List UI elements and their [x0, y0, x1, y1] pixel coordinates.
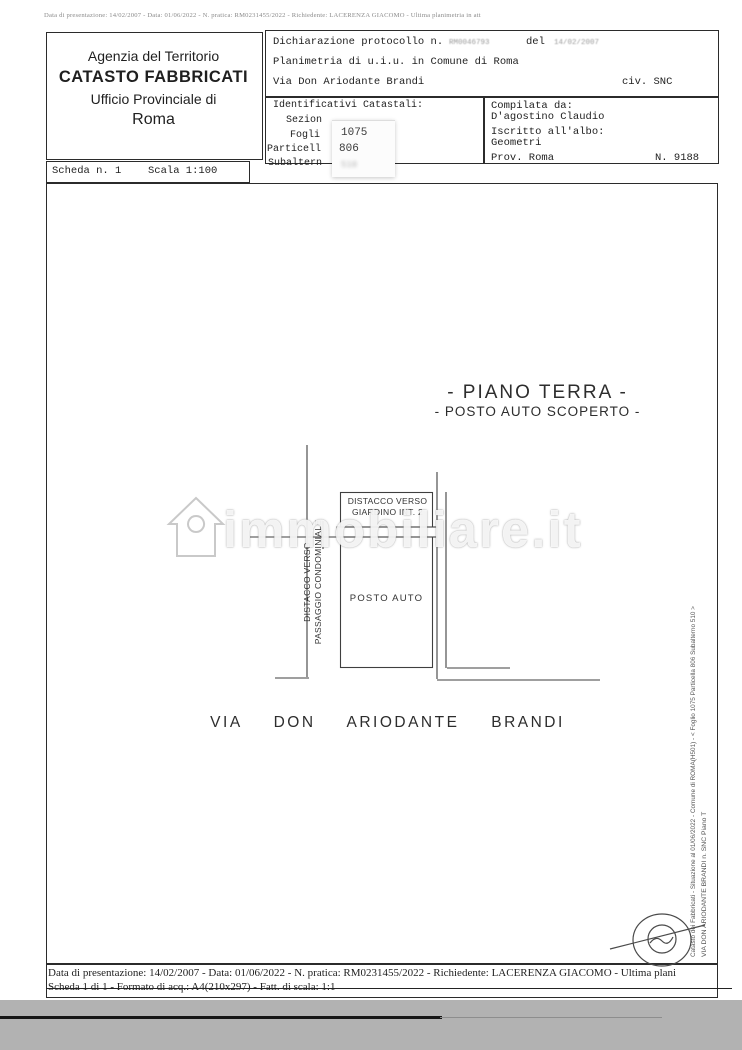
- posto-auto-label: POSTO AUTO: [340, 593, 433, 604]
- footer-line1: Data di presentazione: 14/02/2007 - Data…: [48, 967, 676, 979]
- footer-line2: Scheda 1 di 1 - Formato di acq.: A4(210x…: [48, 981, 335, 993]
- watermark-house-icon: [165, 494, 227, 560]
- scan-bottom-gray-band: [0, 1000, 742, 1050]
- scan-artifact-thin-line: [440, 1017, 662, 1018]
- watermark-text: immobiliare.it: [223, 500, 583, 559]
- cadastral-document-page: Data di presentazione: 14/02/2007 - Data…: [0, 0, 742, 1050]
- watermark: immobiliare.it: [165, 492, 585, 567]
- side-margin-text-address: VIA DON ARIODANTE BRANDI n. SNC Piano T: [701, 812, 708, 957]
- scan-artifact-dark-line: [0, 1016, 442, 1019]
- footer-strikethrough-line: [46, 988, 732, 989]
- street-name-label: VIA DON ARIODANTE BRANDI: [190, 714, 585, 732]
- compass-outer-circle: [633, 914, 691, 966]
- side-margin-text-catasto: Catasto dei Fabbricati - Situazione al 0…: [690, 606, 697, 957]
